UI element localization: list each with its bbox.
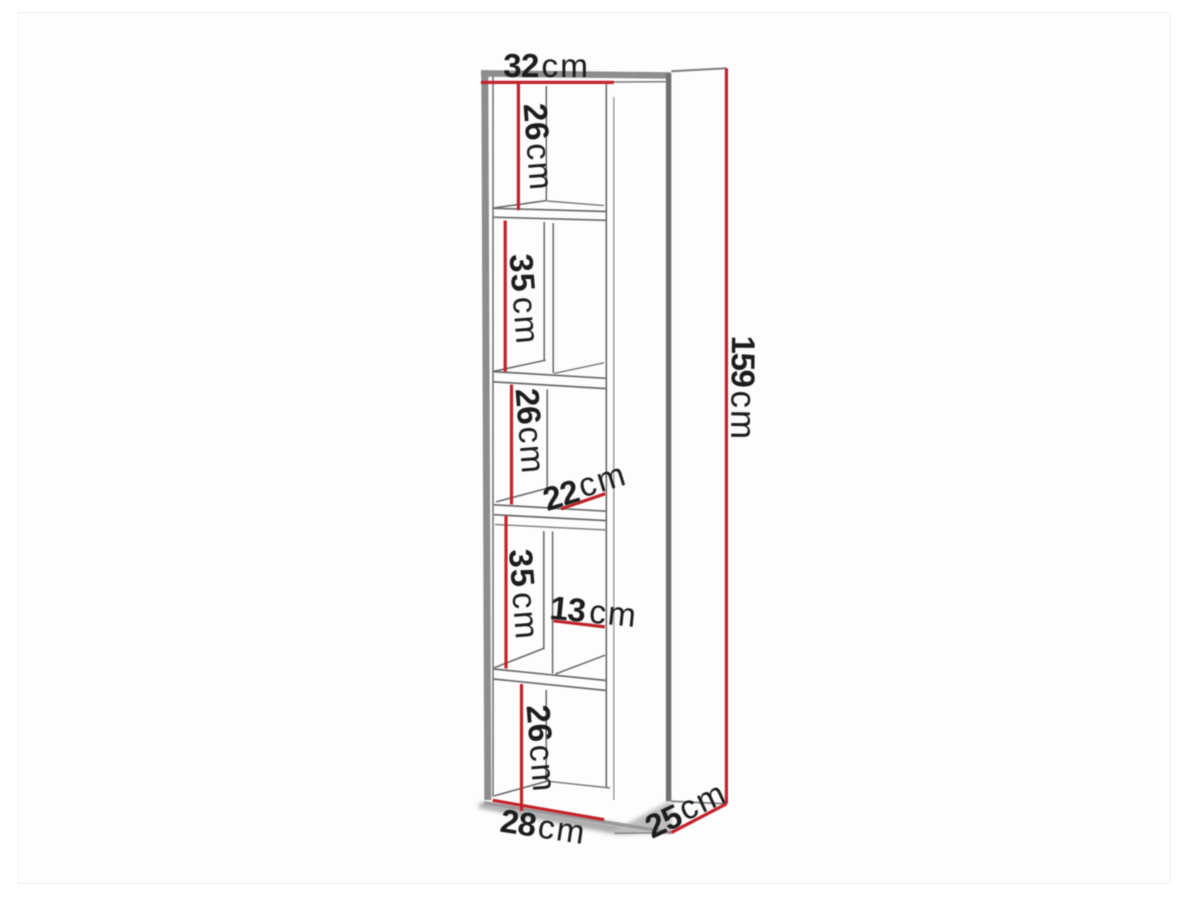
svg-text:26cm: 26cm	[516, 102, 561, 193]
svg-text:26cm: 26cm	[519, 703, 564, 794]
svg-text:26cm: 26cm	[508, 387, 553, 476]
svg-text:35cm: 35cm	[501, 548, 546, 642]
svg-text:32cm: 32cm	[503, 47, 590, 85]
svg-text:35cm: 35cm	[502, 252, 547, 346]
